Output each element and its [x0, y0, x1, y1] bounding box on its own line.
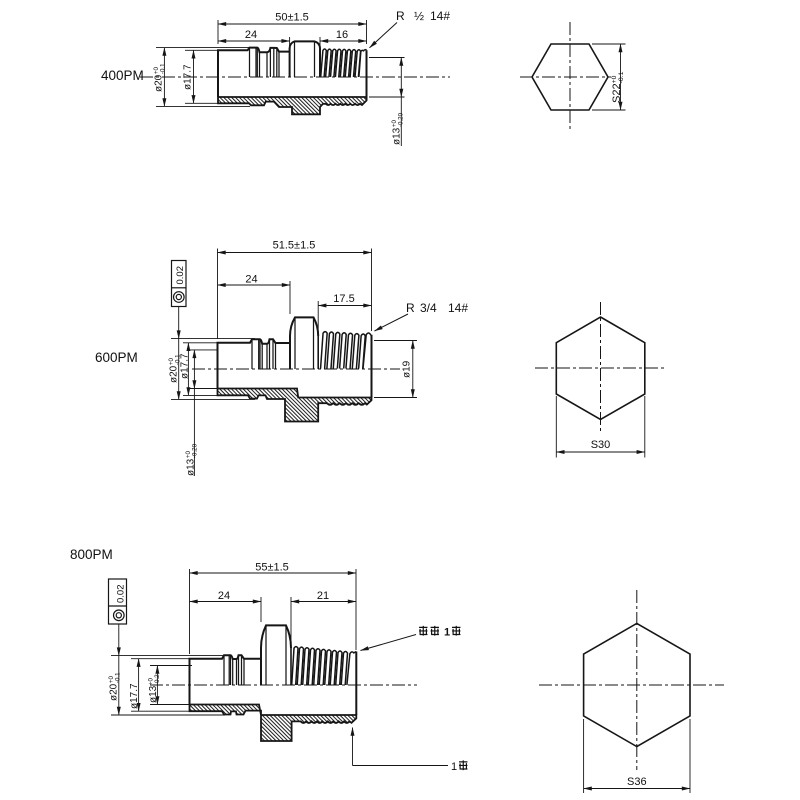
svg-text:S36: S36: [627, 776, 647, 788]
svg-text:R: R: [396, 9, 405, 23]
svg-text:24: 24: [245, 274, 257, 286]
svg-text:600PM: 600PM: [95, 350, 138, 365]
svg-text:+0: +0: [611, 75, 618, 83]
svg-text:3/4: 3/4: [420, 301, 437, 315]
svg-text:14#: 14#: [430, 9, 450, 23]
svg-text:-0.2: -0.2: [154, 674, 161, 685]
svg-text:ø20: ø20: [169, 365, 180, 383]
svg-text:ø13: ø13: [186, 458, 197, 476]
svg-text:ø13: ø13: [148, 685, 159, 703]
svg-text:24: 24: [218, 590, 230, 602]
svg-text:51.5±1.5: 51.5±1.5: [273, 240, 316, 252]
svg-text:ø20: ø20: [109, 683, 120, 701]
svg-text:½: ½: [414, 9, 424, 23]
svg-text:400PM: 400PM: [101, 68, 144, 83]
svg-text:-0.20: -0.20: [397, 112, 404, 127]
svg-text:S22: S22: [611, 83, 623, 103]
svg-text:16: 16: [336, 29, 348, 41]
svg-text:ø17.7: ø17.7: [180, 353, 191, 379]
svg-text:0.02: 0.02: [116, 585, 127, 604]
svg-text:ø17.7: ø17.7: [129, 683, 140, 709]
svg-text:0.02: 0.02: [175, 266, 186, 285]
svg-text:-0.1: -0.1: [618, 71, 625, 83]
svg-text:ø19: ø19: [402, 360, 413, 378]
svg-text:ø20: ø20: [154, 74, 165, 92]
svg-text:14#: 14#: [448, 301, 468, 315]
svg-text:17.5: 17.5: [333, 293, 354, 305]
svg-text:S30: S30: [591, 439, 611, 451]
svg-text:R: R: [406, 301, 415, 315]
svg-text:24: 24: [245, 29, 257, 41]
svg-text:ø17.7: ø17.7: [183, 64, 194, 90]
svg-text:21: 21: [317, 590, 329, 602]
svg-text:55±1.5: 55±1.5: [255, 562, 289, 574]
svg-text:-0.20: -0.20: [191, 443, 198, 458]
svg-text:800PM: 800PM: [70, 547, 113, 562]
svg-text:50±1.5: 50±1.5: [275, 12, 309, 24]
svg-text:-0.1: -0.1: [114, 672, 121, 683]
svg-text:1: 1: [451, 761, 457, 773]
svg-text:-0.1: -0.1: [159, 63, 166, 74]
svg-text:1: 1: [444, 627, 450, 639]
svg-text:ø13: ø13: [392, 127, 403, 145]
